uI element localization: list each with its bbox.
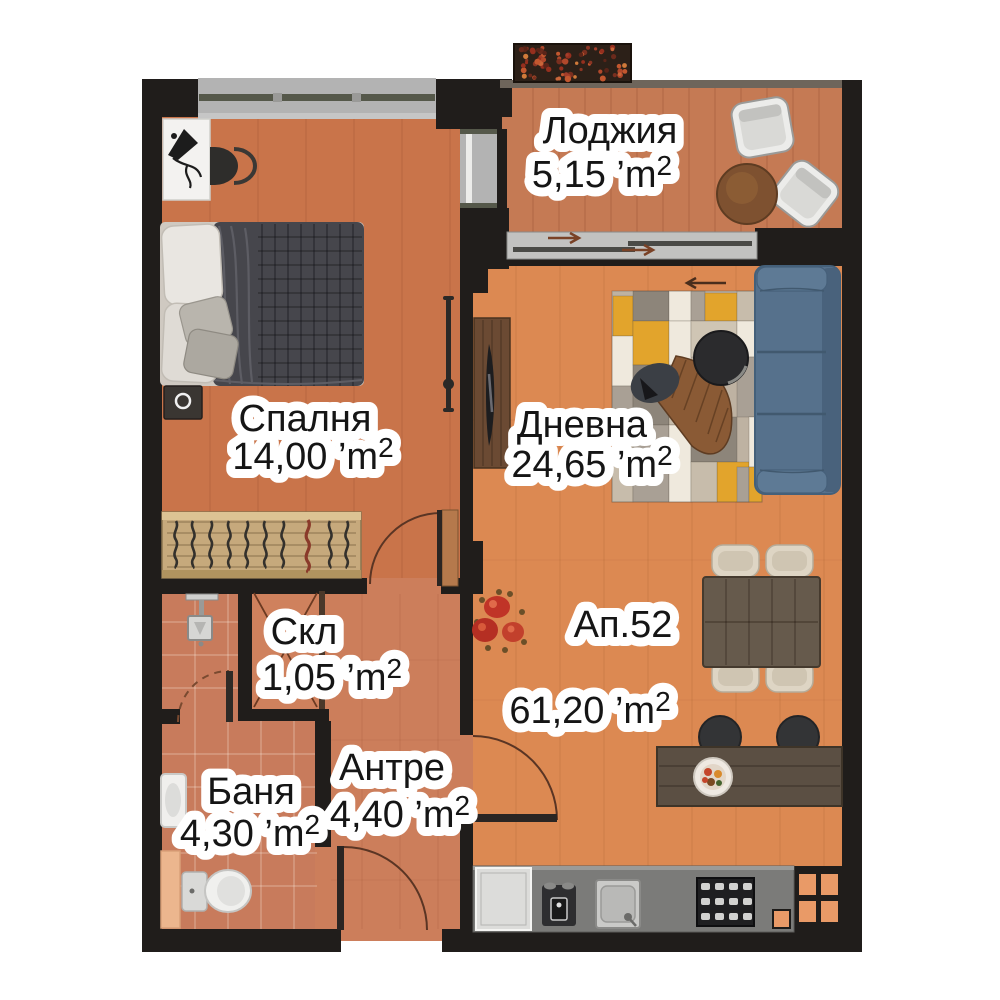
svg-text:Антре: Антре (339, 747, 445, 789)
svg-text:Дневна: Дневна (517, 404, 648, 446)
svg-text:14,00 ’m2: 14,00 ’m2 (232, 432, 393, 478)
svg-text:Спалня: Спалня (239, 398, 372, 440)
svg-text:Скл: Скл (271, 611, 338, 653)
svg-text:Ап.52: Ап.52 (574, 604, 673, 646)
svg-text:4,40 ’m2: 4,40 ’m2 (330, 790, 470, 836)
svg-text:1,05 ’m2: 1,05 ’m2 (262, 653, 402, 699)
svg-text:24,65 ’m2: 24,65 ’m2 (511, 440, 672, 486)
svg-text:4,30 ’m2: 4,30 ’m2 (180, 809, 320, 855)
svg-text:Баня: Баня (207, 771, 295, 813)
svg-text:61,20 ’m2: 61,20 ’m2 (509, 686, 670, 732)
svg-text:5,15 ’m2: 5,15 ’m2 (532, 150, 672, 196)
svg-text:Лоджия: Лоджия (543, 110, 678, 152)
